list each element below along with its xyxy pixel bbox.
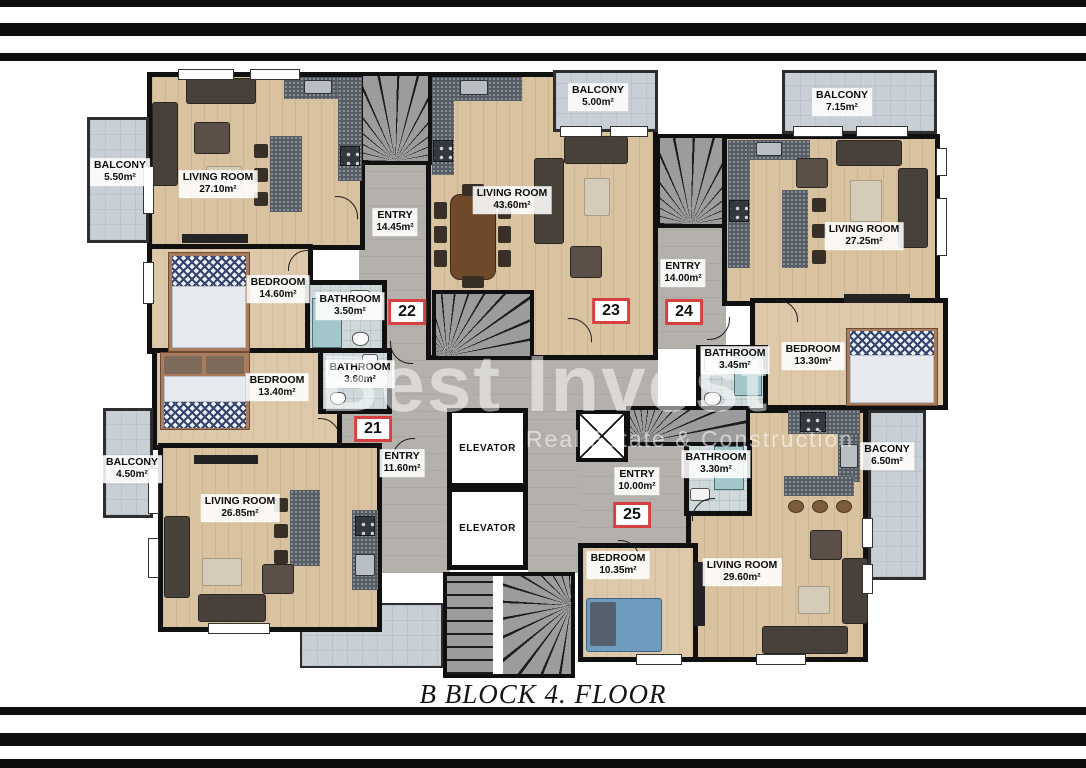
kitchen-sink xyxy=(460,80,488,95)
label-entry-apt22: ENTRY 14.45m² xyxy=(372,208,417,236)
label-entry-apt25: ENTRY 10.00m² xyxy=(614,467,659,495)
room-area: 7.15m² xyxy=(816,102,868,115)
elevator-shaft-2: ELEVATOR xyxy=(447,487,528,570)
apartment-number-25: 25 xyxy=(613,502,651,528)
apartment-number-22: 22 xyxy=(388,299,426,325)
bed-blanket xyxy=(164,402,246,428)
room-name: BATHROOM xyxy=(704,347,765,360)
label-living-apt25: LIVING ROOM 29.60m² xyxy=(703,558,782,586)
armchair xyxy=(810,530,842,560)
bar-chair xyxy=(812,250,826,264)
bottom-stripe-2 xyxy=(0,733,1086,746)
coffee-table xyxy=(202,558,242,586)
room-name: BALCONY xyxy=(106,456,158,469)
kitchen-island xyxy=(270,136,302,212)
label-entry-apt21: ENTRY 11.60m² xyxy=(380,449,425,477)
bed-pillow xyxy=(164,356,202,374)
window xyxy=(560,126,602,137)
toilet xyxy=(330,392,346,405)
window xyxy=(143,262,154,304)
kitchen-sink xyxy=(756,142,782,156)
bar-chair xyxy=(254,144,268,158)
shaft-void-x xyxy=(576,410,628,462)
room-area: 29.60m² xyxy=(707,572,778,585)
bed-duvet xyxy=(850,355,934,403)
staircase-flight xyxy=(503,576,571,674)
room-area: 43.60m² xyxy=(477,200,548,213)
dining-chair xyxy=(434,226,447,243)
stove xyxy=(433,140,453,162)
window xyxy=(936,198,947,256)
room-area: 26.85m² xyxy=(205,508,276,521)
window xyxy=(793,126,843,137)
dining-chair xyxy=(498,250,511,267)
room-name: ENTRY xyxy=(618,468,655,481)
balcony-door xyxy=(862,518,873,548)
room-name: BATHROOM xyxy=(329,361,390,374)
top-stripe-3 xyxy=(0,53,1086,61)
stairs-apt24-duplex xyxy=(656,134,726,228)
armchair xyxy=(194,122,230,154)
apartment-number-24: 24 xyxy=(665,299,703,325)
page-title: B BLOCK 4. FLOOR xyxy=(0,679,1086,710)
window xyxy=(250,69,300,80)
room-apt21-living xyxy=(158,443,382,632)
dining-chair xyxy=(462,276,484,288)
label-entry-apt24: ENTRY 14.00m² xyxy=(660,259,705,287)
label-living-apt22: LIVING ROOM 27.10m² xyxy=(179,170,258,198)
room-area: 14.00m² xyxy=(664,273,701,286)
room-area: 14.60m² xyxy=(251,289,306,302)
label-bathroom-apt22: BATHROOM 3.50m² xyxy=(315,292,384,320)
tv-console xyxy=(194,455,258,464)
main-staircase xyxy=(443,572,575,678)
window xyxy=(208,623,270,634)
room-area: 6.50m² xyxy=(864,456,910,469)
label-bedroom-apt21: BEDROOM 13.40m² xyxy=(246,373,309,401)
room-name: LIVING ROOM xyxy=(477,187,548,200)
room-name: LIVING ROOM xyxy=(183,171,254,184)
sofa xyxy=(564,136,628,164)
armchair xyxy=(796,158,828,188)
top-stripe-1 xyxy=(0,0,1086,7)
kitchen-counter xyxy=(432,101,454,175)
apartment-number-21: 21 xyxy=(354,416,392,442)
kitchen-bar xyxy=(784,476,854,496)
elevator-shaft-1: ELEVATOR xyxy=(447,408,528,488)
sofa xyxy=(198,594,266,622)
kitchen-sink xyxy=(304,80,332,94)
label-balcony-apt24: BALCONY 7.15m² xyxy=(812,88,872,116)
room-name: BALCONY xyxy=(816,89,868,102)
label-balcony-apt23: BALCONY 5.00m² xyxy=(568,83,628,111)
room-area: 27.10m² xyxy=(183,184,254,197)
kitchen-sink xyxy=(840,444,858,468)
floor-plan-page: ELEVATOR ELEVATOR xyxy=(0,0,1086,768)
armchair xyxy=(262,564,294,594)
bed-duvet xyxy=(164,376,246,402)
coffee-table xyxy=(850,180,882,222)
label-bathroom-apt21: BATHROOM 3.60m² xyxy=(325,360,394,388)
label-balcony-apt22: BALCONY 5.50m² xyxy=(90,158,150,186)
dining-chair xyxy=(498,226,511,243)
room-name: BEDROOM xyxy=(250,374,305,387)
sofa xyxy=(164,516,190,598)
coffee-table xyxy=(798,586,830,614)
room-name: LIVING ROOM xyxy=(205,495,276,508)
room-name: BEDROOM xyxy=(251,276,306,289)
apartment-number-23: 23 xyxy=(592,298,630,324)
bar-chair xyxy=(812,198,826,212)
room-name: LIVING ROOM xyxy=(829,223,900,236)
corridor-by-elevators xyxy=(528,412,578,573)
bed-blanket xyxy=(850,331,934,355)
stove xyxy=(800,412,826,432)
room-area: 4.50m² xyxy=(106,469,158,482)
bar-chair xyxy=(274,524,288,538)
toilet xyxy=(352,332,369,346)
staircase-landing xyxy=(493,576,503,674)
bed-pillow xyxy=(590,602,616,646)
label-balcony-apt25: BACONY 6.50m² xyxy=(860,442,914,470)
bar-chair xyxy=(274,550,288,564)
window xyxy=(148,538,159,578)
stairs-apt25-duplex xyxy=(626,406,750,446)
room-area: 13.40m² xyxy=(250,387,305,400)
room-name: ENTRY xyxy=(664,260,701,273)
bar-stool xyxy=(788,500,804,513)
window xyxy=(856,126,908,137)
bed-pillow xyxy=(206,356,244,374)
dining-chair xyxy=(434,250,447,267)
dining-chair xyxy=(434,202,447,219)
balcony-apt25 xyxy=(868,410,926,580)
toilet xyxy=(704,392,721,406)
room-name: ENTRY xyxy=(384,450,421,463)
stairs-apt23-duplex xyxy=(432,290,534,360)
window xyxy=(610,126,648,137)
room-name: BATHROOM xyxy=(319,293,380,306)
bottom-stripe-3 xyxy=(0,759,1086,768)
room-area: 3.60m² xyxy=(329,374,390,387)
room-name: BALCONY xyxy=(94,159,146,172)
room-area: 3.45m² xyxy=(704,360,765,373)
bar-stool xyxy=(836,500,852,513)
room-name: BACONY xyxy=(864,443,910,456)
sofa xyxy=(186,78,256,104)
label-living-apt24: LIVING ROOM 27.25m² xyxy=(825,222,904,250)
label-bedroom-apt25: BEDROOM 10.35m² xyxy=(587,551,650,579)
window xyxy=(756,654,806,665)
sofa xyxy=(762,626,848,654)
kitchen-island xyxy=(290,490,320,566)
room-area: 5.00m² xyxy=(572,97,624,110)
bed-duvet xyxy=(172,286,246,348)
stove xyxy=(729,200,749,222)
room-area: 10.00m² xyxy=(618,481,655,494)
tv-console xyxy=(844,294,910,303)
bar-stool xyxy=(812,500,828,513)
bed-blanket xyxy=(172,256,246,286)
elevator-label: ELEVATOR xyxy=(459,443,516,454)
tv-console xyxy=(182,234,248,243)
kitchen-island xyxy=(782,190,808,268)
room-area: 10.35m² xyxy=(591,565,646,578)
room-area: 27.25m² xyxy=(829,236,900,249)
room-name: BATHROOM xyxy=(685,451,746,464)
label-bedroom-apt24: BEDROOM 13.30m² xyxy=(782,342,845,370)
room-name: BEDROOM xyxy=(786,343,841,356)
label-balcony-apt21: BALCONY 4.50m² xyxy=(102,455,162,483)
room-area: 13.30m² xyxy=(786,356,841,369)
label-living-apt23: LIVING ROOM 43.60m² xyxy=(473,186,552,214)
sofa xyxy=(836,140,902,166)
window xyxy=(636,654,682,665)
room-name: BEDROOM xyxy=(591,552,646,565)
label-living-apt21: LIVING ROOM 26.85m² xyxy=(201,494,280,522)
sofa xyxy=(152,102,178,186)
room-area: 11.60m² xyxy=(384,463,421,476)
window xyxy=(178,69,234,80)
stove xyxy=(340,146,360,166)
window xyxy=(936,148,947,176)
room-area: 5.50m² xyxy=(94,172,146,185)
window xyxy=(862,564,873,594)
stairs-apt22-duplex xyxy=(359,72,432,165)
room-name: LIVING ROOM xyxy=(707,559,778,572)
room-name: ENTRY xyxy=(376,209,413,222)
top-stripe-2 xyxy=(0,23,1086,36)
label-bathroom-apt25: BATHROOM 3.30m² xyxy=(681,450,750,478)
label-bedroom-apt22: BEDROOM 14.60m² xyxy=(247,275,310,303)
room-area: 3.30m² xyxy=(685,464,746,477)
room-area: 3.50m² xyxy=(319,306,380,319)
coffee-table xyxy=(584,178,610,216)
room-name: BALCONY xyxy=(572,84,624,97)
room-area: 14.45m² xyxy=(376,222,413,235)
stove xyxy=(355,516,375,536)
elevator-label: ELEVATOR xyxy=(459,523,516,534)
label-bathroom-apt24: BATHROOM 3.45m² xyxy=(700,346,769,374)
armchair xyxy=(570,246,602,278)
kitchen-sink xyxy=(355,554,375,576)
